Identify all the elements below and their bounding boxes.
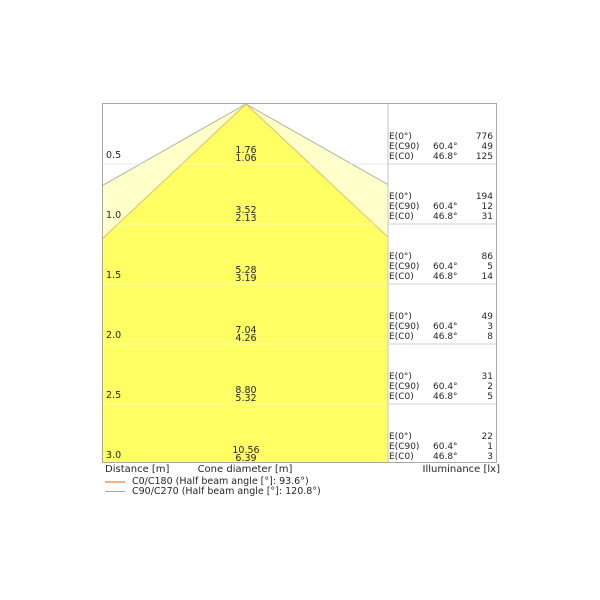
cone-diameter-c0: 6.39 (186, 455, 306, 463)
ec90-value: 2 (466, 382, 493, 392)
cone-diagram-plot: 0.5 1.76 1.06 E(0°)776 E(C90)60.4°49 E(C… (102, 103, 497, 463)
ec90-angle: 60.4° (433, 322, 466, 332)
ec90-angle: 60.4° (433, 442, 466, 452)
cone-diameter-c0: 5.32 (186, 395, 306, 403)
e0-label: E(0°) (389, 432, 433, 442)
e0-value: 49 (466, 312, 493, 322)
ec90-value: 3 (466, 322, 493, 332)
cone-diameter-c0: 4.26 (186, 335, 306, 343)
e0-label: E(0°) (389, 192, 433, 202)
distance-label: 2.5 (106, 390, 121, 401)
ec90-value: 49 (466, 142, 493, 152)
ec0-value: 5 (466, 392, 493, 402)
legend-line-c90-c270-icon (105, 491, 125, 493)
ec90-value: 1 (466, 442, 493, 452)
ec90-angle: 60.4° (433, 262, 466, 272)
ec90-angle: 60.4° (433, 382, 466, 392)
illuminance-block: E(0°)22 E(C90)60.4°1 E(C0)46.8°3 (389, 432, 493, 462)
ec0-angle: 46.8° (433, 332, 466, 342)
ec0-angle: 46.8° (433, 452, 466, 462)
cone-diameter-values: 8.80 5.32 (186, 387, 306, 402)
e0-value: 31 (466, 372, 493, 382)
ec90-label: E(C90) (389, 142, 433, 152)
e0-value: 86 (466, 252, 493, 262)
cone-diameter-c0: 2.13 (186, 215, 306, 223)
ec0-angle: 46.8° (433, 212, 466, 222)
ec90-angle: 60.4° (433, 142, 466, 152)
cone-diagram-screen: 0.5 1.76 1.06 E(0°)776 E(C90)60.4°49 E(C… (0, 0, 600, 600)
e0-label: E(0°) (389, 372, 433, 382)
illuminance-block: E(0°)194 E(C90)60.4°12 E(C0)46.8°31 (389, 192, 493, 222)
distance-label: 1.5 (106, 270, 121, 281)
cone-diameter-c0: 1.06 (186, 155, 306, 163)
ec90-label: E(C90) (389, 322, 433, 332)
distance-label: 3.0 (106, 450, 121, 461)
ec0-label: E(C0) (389, 452, 433, 462)
ec0-label: E(C0) (389, 272, 433, 282)
x-axis-label-illuminance: Illuminance [lx] (377, 464, 500, 475)
ec0-value: 125 (466, 152, 493, 162)
legend: C0/C180 (Half beam angle [°]: 93.6°) C90… (105, 477, 321, 496)
ec90-label: E(C90) (389, 442, 433, 452)
cone-diameter-c0: 3.19 (186, 275, 306, 283)
cone-diameter-values: 10.56 6.39 (186, 447, 306, 462)
legend-label-c90-c270: C90/C270 (Half beam angle [°]: 120.8°) (132, 487, 321, 497)
ec90-value: 12 (466, 202, 493, 212)
e0-value: 194 (466, 192, 493, 202)
cone-diameter-values: 7.04 4.26 (186, 327, 306, 342)
cone-diameter-values: 5.28 3.19 (186, 267, 306, 282)
ec90-label: E(C90) (389, 262, 433, 272)
e0-label: E(0°) (389, 132, 433, 142)
legend-line-c0-c180-icon (105, 481, 125, 483)
illuminance-block: E(0°)86 E(C90)60.4°5 E(C0)46.8°14 (389, 252, 493, 282)
cone-diameter-values: 3.52 2.13 (186, 207, 306, 222)
illuminance-block: E(0°)49 E(C90)60.4°3 E(C0)46.8°8 (389, 312, 493, 342)
ec0-angle: 46.8° (433, 152, 466, 162)
distance-label: 0.5 (106, 150, 121, 161)
ec90-angle: 60.4° (433, 202, 466, 212)
e0-value: 22 (466, 432, 493, 442)
distance-label: 2.0 (106, 330, 121, 341)
ec90-value: 5 (466, 262, 493, 272)
ec90-label: E(C90) (389, 202, 433, 212)
ec0-value: 3 (466, 452, 493, 462)
ec0-label: E(C0) (389, 332, 433, 342)
cone-diameter-values: 1.76 1.06 (186, 147, 306, 162)
legend-row-c90-c270: C90/C270 (Half beam angle [°]: 120.8°) (105, 487, 321, 497)
ec0-value: 14 (466, 272, 493, 282)
ec0-angle: 46.8° (433, 392, 466, 402)
illuminance-block: E(0°)31 E(C90)60.4°2 E(C0)46.8°5 (389, 372, 493, 402)
e0-label: E(0°) (389, 312, 433, 322)
e0-value: 776 (466, 132, 493, 142)
e0-label: E(0°) (389, 252, 433, 262)
ec0-label: E(C0) (389, 212, 433, 222)
distance-label: 1.0 (106, 210, 121, 221)
ec0-label: E(C0) (389, 392, 433, 402)
illuminance-block: E(0°)776 E(C90)60.4°49 E(C0)46.8°125 (389, 132, 493, 162)
ec0-label: E(C0) (389, 152, 433, 162)
x-axis-label-cone: Cone diameter [m] (145, 464, 345, 475)
ec0-angle: 46.8° (433, 272, 466, 282)
ec0-value: 8 (466, 332, 493, 342)
ec90-label: E(C90) (389, 382, 433, 392)
ec0-value: 31 (466, 212, 493, 222)
